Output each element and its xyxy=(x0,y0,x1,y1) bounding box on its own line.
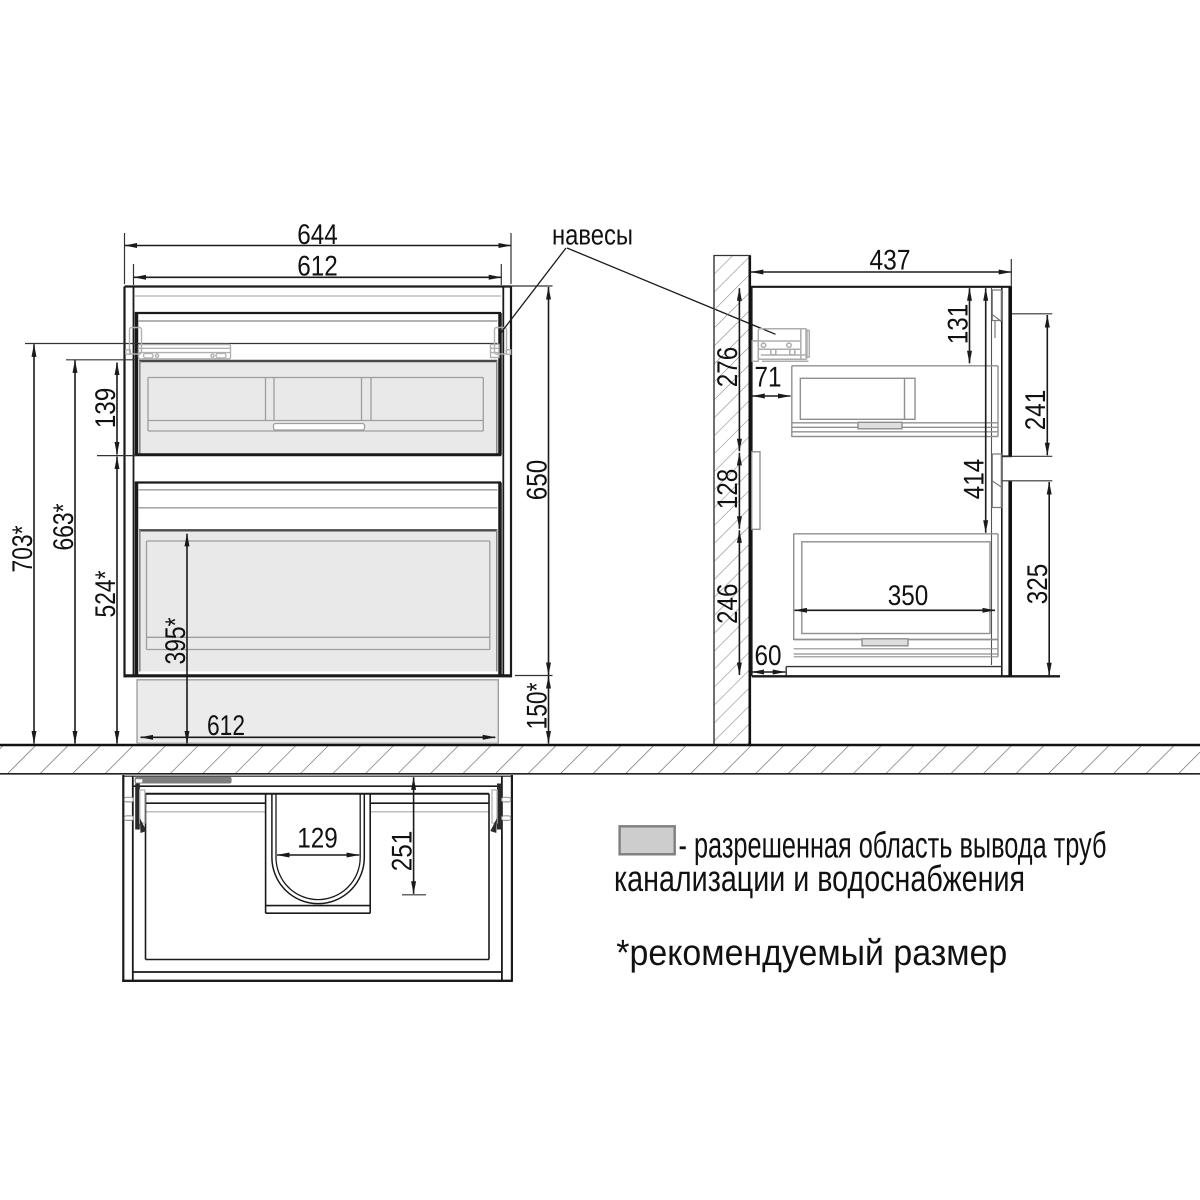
svg-text:325: 325 xyxy=(1022,564,1054,605)
svg-text:129: 129 xyxy=(297,823,338,855)
svg-text:437: 437 xyxy=(870,244,911,276)
svg-text:241: 241 xyxy=(1020,390,1052,431)
svg-text:*рекомендуемый размер: *рекомендуемый размер xyxy=(616,932,1007,973)
svg-text:395*: 395* xyxy=(160,618,192,665)
svg-text:128: 128 xyxy=(712,469,744,510)
svg-text:663*: 663* xyxy=(48,504,80,551)
svg-text:150*: 150* xyxy=(521,683,553,730)
svg-text:612: 612 xyxy=(297,250,338,282)
svg-text:650: 650 xyxy=(521,460,553,501)
svg-text:246: 246 xyxy=(712,583,744,624)
svg-text:60: 60 xyxy=(755,640,782,672)
svg-text:414: 414 xyxy=(959,459,991,500)
svg-text:71: 71 xyxy=(755,362,782,394)
svg-text:524*: 524* xyxy=(90,571,122,618)
svg-text:131: 131 xyxy=(942,304,974,345)
svg-text:644: 644 xyxy=(297,219,338,251)
svg-text:251: 251 xyxy=(386,831,418,872)
svg-text:навесы: навесы xyxy=(552,220,633,252)
svg-text:350: 350 xyxy=(888,580,929,612)
svg-text:612: 612 xyxy=(207,710,245,742)
svg-text:139: 139 xyxy=(90,388,122,429)
svg-text:276: 276 xyxy=(712,347,744,388)
svg-text:703*: 703* xyxy=(7,526,39,573)
svg-text:канализации и водоснабжения: канализации и водоснабжения xyxy=(614,858,1025,899)
